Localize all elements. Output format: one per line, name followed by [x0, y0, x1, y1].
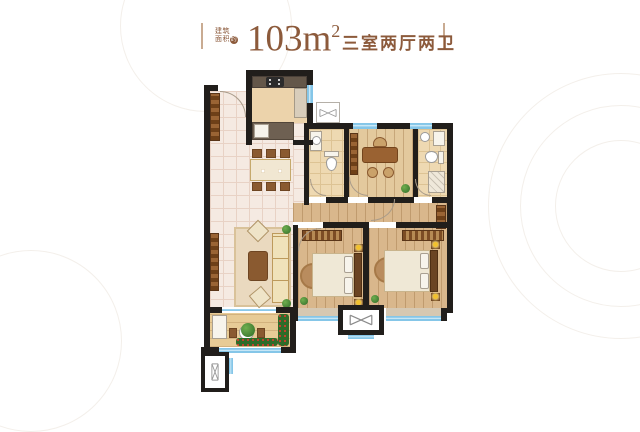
- area-note-line1: 建筑: [215, 28, 230, 35]
- vertical-duct-icon: [210, 359, 220, 385]
- stove-icon: [266, 77, 284, 87]
- layout-label: 三室两厅两卫: [342, 29, 456, 54]
- plant-icon: [300, 297, 308, 305]
- wall: [441, 308, 447, 321]
- wall: [396, 222, 447, 228]
- area-superscript: 2: [331, 21, 340, 41]
- wall: [246, 70, 252, 145]
- flower-box: [236, 338, 278, 346]
- pillow: [344, 277, 353, 294]
- dining-chair: [280, 182, 290, 191]
- duct-box-window: [348, 335, 374, 339]
- dining-chair: [280, 149, 290, 158]
- plant-icon: [282, 225, 291, 234]
- balcony-chair: [257, 328, 265, 338]
- shoe-cabinet: [210, 93, 220, 141]
- shaft-window: [229, 358, 233, 374]
- wall: [326, 197, 348, 203]
- coffee-table: [248, 251, 268, 281]
- dining-table: [250, 159, 291, 181]
- area-note-line2: 面积: [215, 36, 230, 43]
- guest-chair: [383, 167, 394, 178]
- flue-duct-box: [316, 102, 340, 123]
- dining-chair: [266, 149, 276, 158]
- bottom-duct-box: [338, 305, 384, 335]
- pillow: [344, 256, 353, 273]
- wall: [304, 123, 309, 205]
- study-bookshelf: [350, 133, 358, 175]
- study-desk: [362, 147, 398, 163]
- dining-chair: [252, 182, 262, 191]
- bedroom2-bay-sill: [298, 308, 338, 316]
- wall: [281, 347, 295, 353]
- wall: [293, 140, 313, 145]
- bedroom2-bay-window: [298, 316, 338, 321]
- master-bay-sill: [386, 308, 441, 316]
- sofa: [272, 233, 289, 303]
- tv-cabinet: [210, 233, 219, 291]
- guest-chair: [367, 167, 378, 178]
- bath2-toilet-tank: [438, 151, 444, 164]
- area-note: 建筑 面积约: [215, 28, 238, 44]
- balcony-plant-icon: [241, 323, 255, 337]
- wall: [363, 222, 369, 308]
- bath1-sink-icon: [312, 136, 321, 145]
- deco-ring: [0, 250, 122, 432]
- hall-floor-extension: [293, 123, 304, 203]
- shaft-box: [201, 352, 229, 392]
- bedroom2-headboard: [354, 253, 362, 297]
- lamp-icon: [433, 294, 438, 299]
- floorplan-canvas: [186, 65, 456, 397]
- balcony-chair: [229, 328, 237, 338]
- wall: [432, 197, 447, 203]
- wall: [447, 123, 453, 313]
- kitchen-sink-icon: [254, 124, 269, 138]
- bath2-sink-icon: [420, 132, 430, 142]
- bowtie-duct-icon: [348, 314, 374, 326]
- dining-chair: [252, 149, 262, 158]
- kitchen-window: [307, 85, 313, 103]
- master-wardrobe: [402, 230, 444, 241]
- plant-icon: [371, 295, 379, 303]
- bath2-washing-machine-icon: [433, 131, 445, 146]
- plant-icon: [401, 184, 410, 193]
- corridor-floor: [293, 203, 447, 222]
- bowtie-duct-icon: [319, 107, 337, 119]
- study-window: [353, 123, 377, 129]
- pillow: [420, 253, 429, 269]
- area-note-badge: 约: [230, 36, 238, 44]
- lamp-icon: [356, 245, 361, 250]
- wall: [344, 129, 349, 197]
- desk-chair: [373, 137, 387, 147]
- balcony-lounge-chair: [212, 315, 227, 339]
- master-headboard: [430, 250, 438, 292]
- master-bay-window: [386, 316, 441, 321]
- balcony-slider-door: [222, 309, 276, 311]
- deco-ring: [488, 73, 640, 339]
- pillow: [420, 273, 429, 289]
- wall: [204, 307, 222, 313]
- wall: [293, 225, 298, 308]
- bath2-window: [410, 123, 432, 129]
- flower-box: [278, 314, 289, 346]
- fridge: [294, 88, 307, 118]
- dining-chair: [266, 182, 276, 191]
- floorplan-page: 建筑 面积约 103m2 三室两厅两卫: [0, 0, 640, 410]
- wall: [246, 70, 313, 76]
- header-left-divider: [201, 23, 203, 49]
- lamp-icon: [433, 242, 438, 247]
- area-value: 103m2: [247, 13, 340, 57]
